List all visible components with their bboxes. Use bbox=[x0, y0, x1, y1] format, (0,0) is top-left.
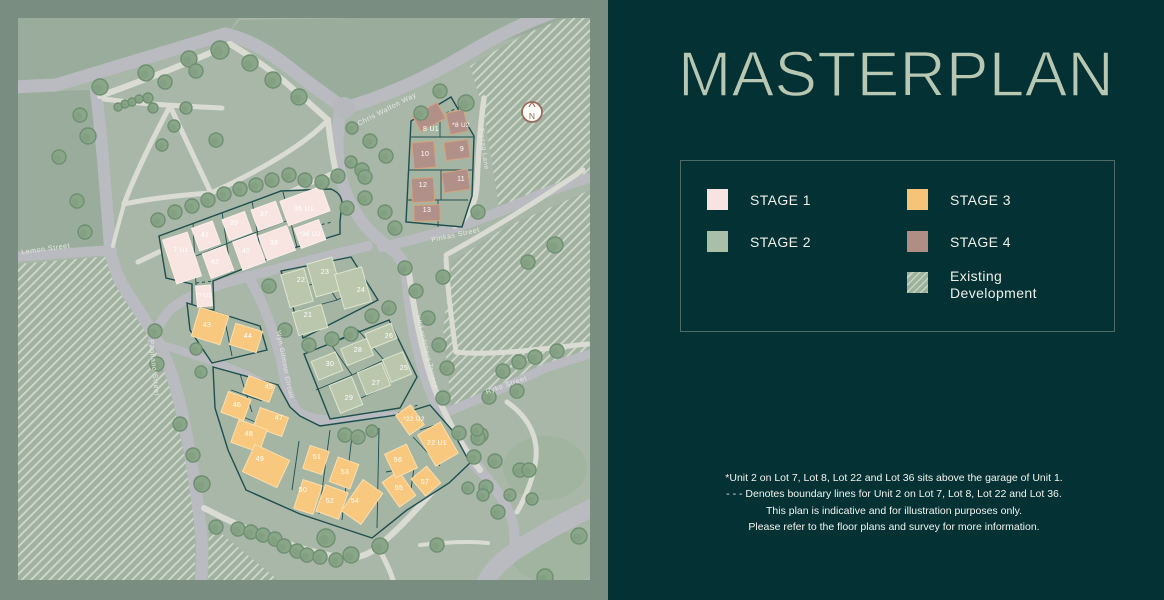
svg-text:*8 U2: *8 U2 bbox=[452, 122, 470, 129]
svg-text:30: 30 bbox=[326, 361, 334, 368]
svg-text:21: 21 bbox=[304, 312, 312, 319]
svg-text:11: 11 bbox=[457, 176, 465, 183]
svg-text:29: 29 bbox=[345, 395, 353, 402]
svg-text:24: 24 bbox=[357, 287, 365, 294]
svg-text:51: 51 bbox=[313, 454, 321, 461]
svg-text:27: 27 bbox=[372, 380, 380, 387]
svg-text:45: 45 bbox=[265, 384, 273, 391]
svg-text:39: 39 bbox=[230, 220, 238, 227]
svg-text:52: 52 bbox=[326, 498, 334, 505]
svg-text:25: 25 bbox=[400, 365, 408, 372]
svg-text:10: 10 bbox=[421, 151, 429, 158]
svg-text:55: 55 bbox=[395, 485, 403, 492]
svg-text:44: 44 bbox=[244, 333, 252, 340]
svg-text:26: 26 bbox=[385, 333, 393, 340]
svg-text:23: 23 bbox=[321, 269, 329, 276]
svg-text:37: 37 bbox=[260, 211, 268, 218]
svg-text:38: 38 bbox=[270, 240, 278, 247]
svg-text:40: 40 bbox=[242, 248, 250, 255]
svg-text:49: 49 bbox=[256, 456, 264, 463]
svg-text:*22 U2: *22 U2 bbox=[403, 416, 425, 423]
svg-text:9: 9 bbox=[460, 146, 464, 153]
svg-text:22 U1: 22 U1 bbox=[427, 440, 447, 447]
svg-text:7 U1: 7 U1 bbox=[174, 247, 189, 254]
svg-text:13: 13 bbox=[423, 207, 431, 214]
svg-text:56: 56 bbox=[394, 457, 402, 464]
svg-text:50: 50 bbox=[299, 487, 307, 494]
svg-text:N: N bbox=[529, 111, 535, 121]
svg-text:41: 41 bbox=[201, 232, 209, 239]
svg-text:46: 46 bbox=[233, 402, 241, 409]
svg-text:43: 43 bbox=[203, 322, 211, 329]
svg-text:48: 48 bbox=[245, 431, 253, 438]
svg-text:47: 47 bbox=[275, 415, 283, 422]
svg-text:*7 U2: *7 U2 bbox=[196, 293, 211, 299]
svg-text:12: 12 bbox=[419, 182, 427, 189]
svg-text:53: 53 bbox=[341, 469, 349, 476]
svg-text:22: 22 bbox=[297, 277, 305, 284]
svg-text:36 U1: 36 U1 bbox=[294, 206, 314, 213]
svg-text:8 U1: 8 U1 bbox=[423, 126, 439, 133]
svg-text:54: 54 bbox=[351, 498, 359, 505]
svg-text:57: 57 bbox=[421, 479, 429, 486]
svg-text:28: 28 bbox=[354, 347, 362, 354]
svg-text:42: 42 bbox=[211, 259, 219, 266]
svg-text:*36 U2: *36 U2 bbox=[299, 231, 321, 238]
